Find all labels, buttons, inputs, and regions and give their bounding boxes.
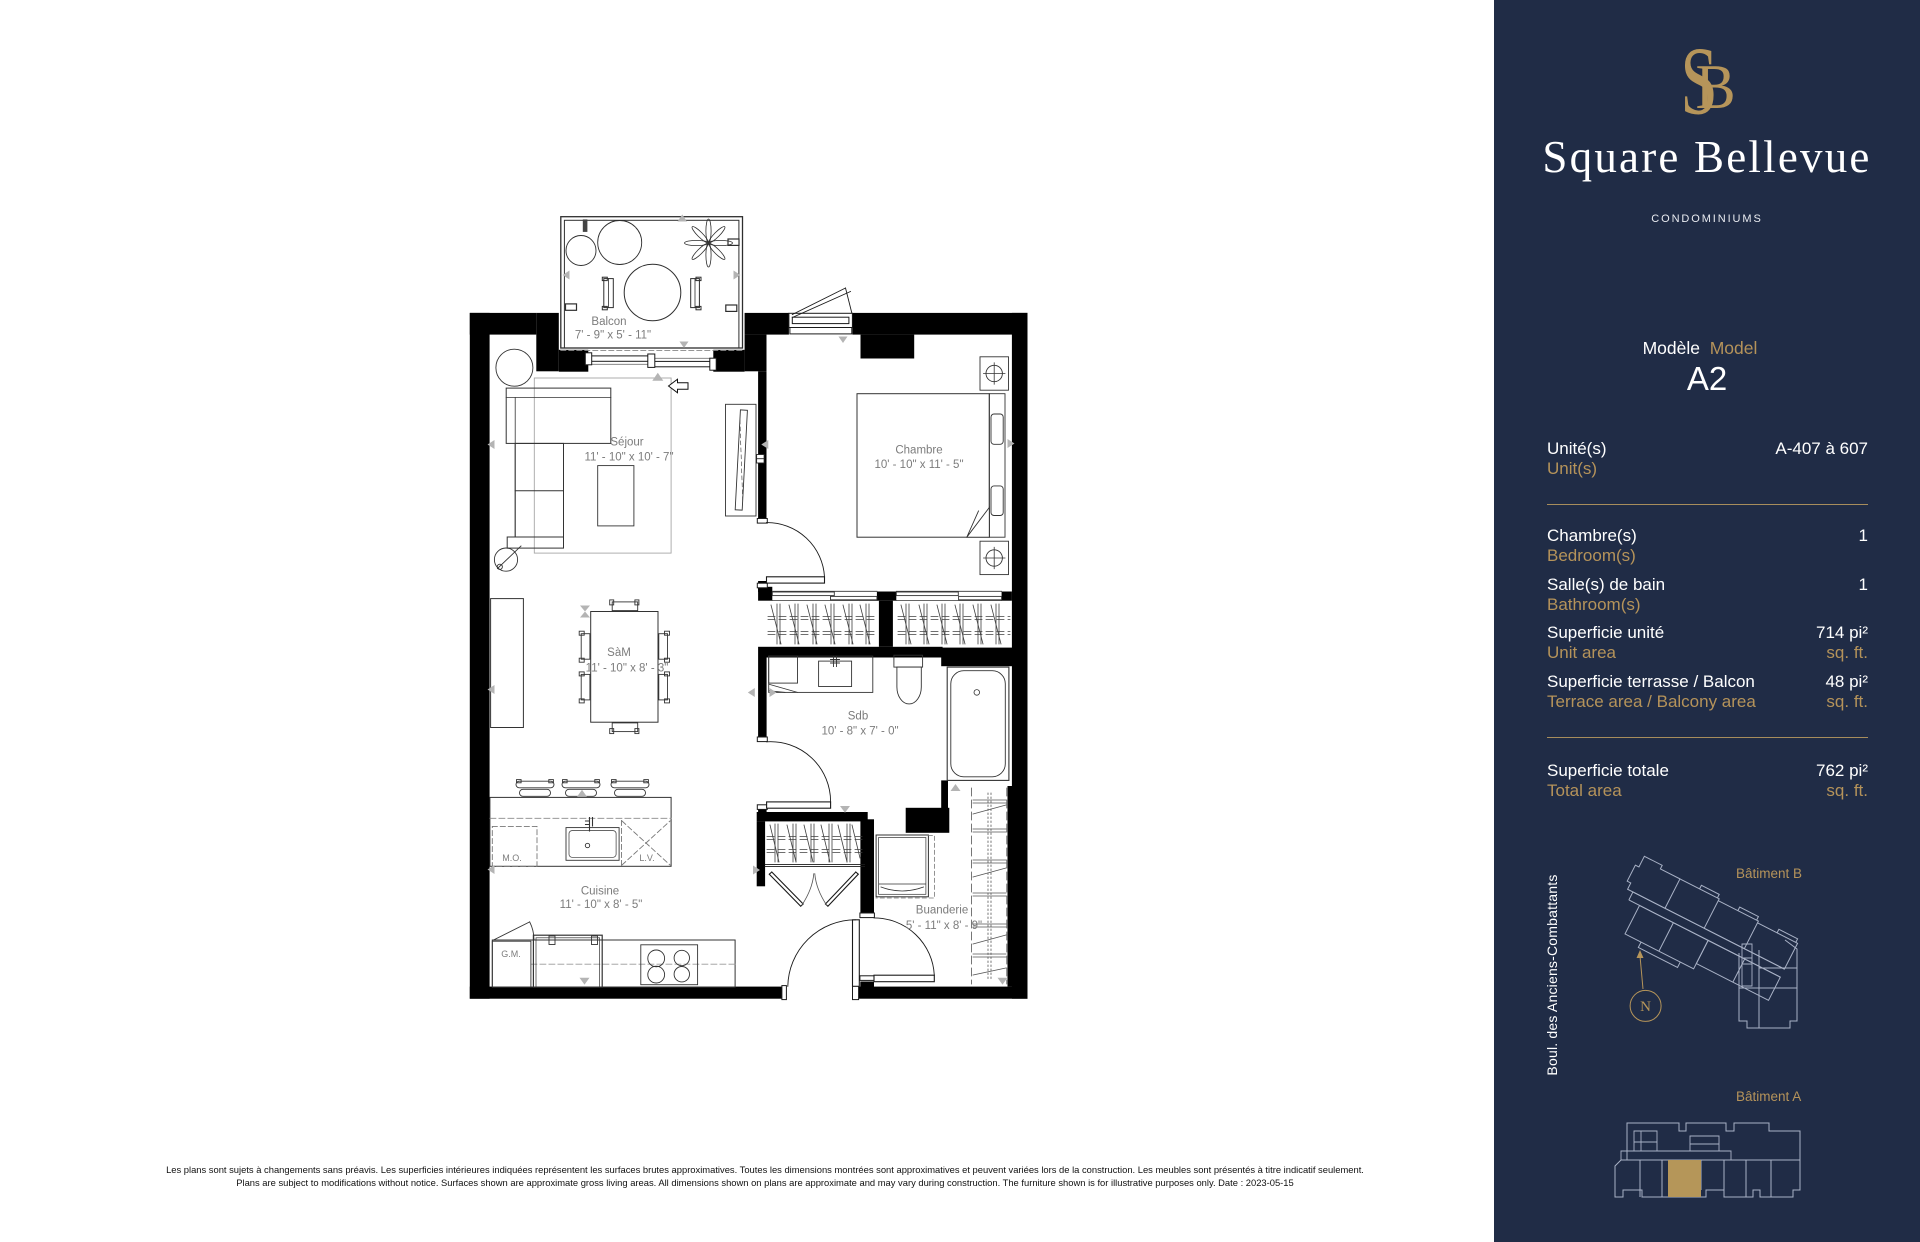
svg-text:L.V.: L.V. — [639, 853, 654, 863]
svg-text:Chambre: Chambre — [895, 444, 942, 456]
svg-text:11' - 10" x 8' - 5": 11' - 10" x 8' - 5" — [560, 899, 643, 911]
svg-text:Sdb: Sdb — [848, 711, 868, 723]
svg-text:Cuisine: Cuisine — [581, 886, 619, 898]
svg-text:11' - 10" x 8' - 3": 11' - 10" x 8' - 3" — [586, 662, 669, 674]
svg-text:G.M.: G.M. — [501, 949, 521, 959]
svg-text:Balcon: Balcon — [591, 316, 626, 328]
svg-text:SàM: SàM — [607, 647, 631, 659]
svg-text:5' - 11" x 8' - 9": 5' - 11" x 8' - 9" — [906, 920, 982, 932]
svg-text:N: N — [1640, 999, 1651, 1015]
svg-text:11' - 10" x 10' - 7": 11' - 10" x 10' - 7" — [584, 452, 673, 464]
svg-text:Séjour: Séjour — [610, 437, 643, 449]
svg-text:Buanderie: Buanderie — [916, 904, 968, 916]
svg-text:7' - 9" x 5' - 11": 7' - 9" x 5' - 11" — [575, 330, 651, 342]
svg-text:M.O.: M.O. — [502, 853, 522, 863]
svg-text:10' - 8" x 7' - 0": 10' - 8" x 7' - 0" — [821, 726, 898, 738]
svg-text:10' - 10" x 11' - 5": 10' - 10" x 11' - 5" — [874, 459, 963, 471]
